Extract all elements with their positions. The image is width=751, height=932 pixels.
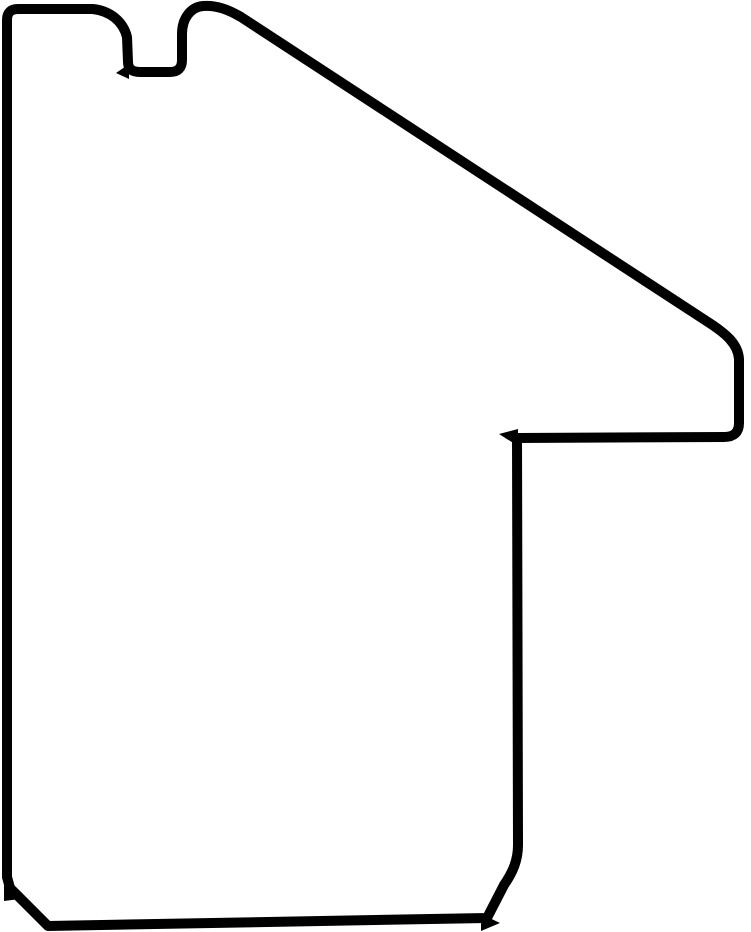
moulding-profile-drawing [0,0,751,932]
canvas [0,0,751,932]
moulding-profile-outline [7,6,739,926]
